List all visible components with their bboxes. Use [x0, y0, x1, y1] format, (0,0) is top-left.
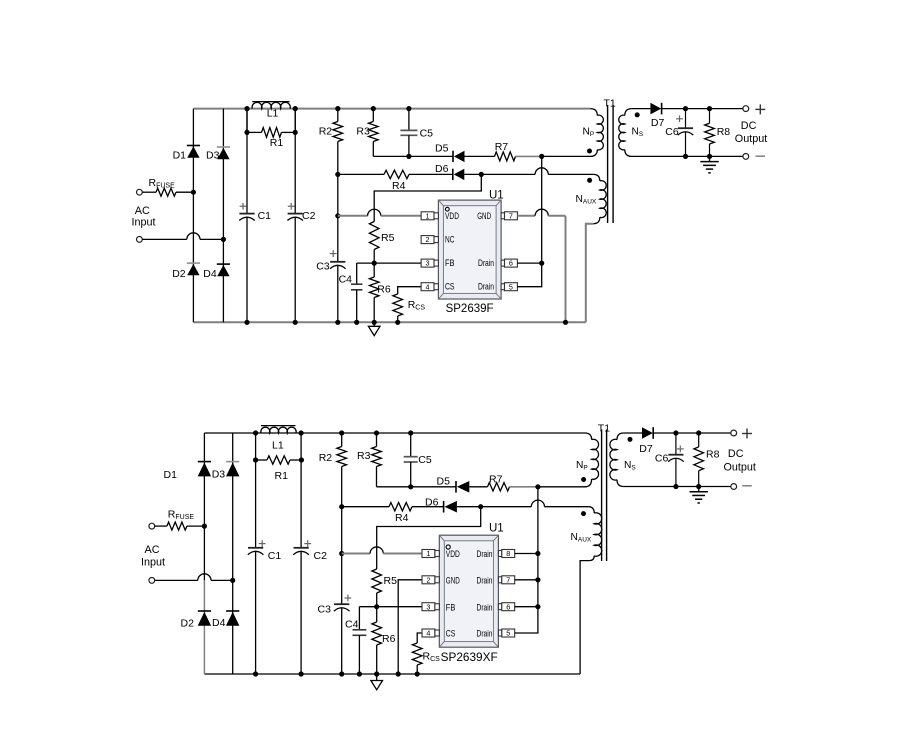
svg-text:R6: R6 [382, 633, 396, 645]
svg-text:U1: U1 [489, 523, 504, 535]
svg-text:R2: R2 [319, 452, 333, 464]
svg-text:R6: R6 [377, 284, 391, 296]
svg-text:T1: T1 [604, 98, 616, 110]
svg-text:C6: C6 [665, 126, 679, 138]
svg-text:5: 5 [506, 629, 510, 638]
svg-text:C3: C3 [318, 604, 332, 616]
svg-text:D6: D6 [425, 497, 439, 509]
svg-text:C5: C5 [420, 127, 434, 139]
svg-text:D4: D4 [212, 617, 226, 629]
svg-text:AC: AC [145, 544, 160, 556]
svg-text:Input: Input [132, 216, 156, 228]
svg-text:Drain: Drain [478, 281, 494, 291]
svg-text:DC: DC [728, 448, 744, 460]
svg-text:4: 4 [426, 629, 430, 638]
svg-text:7: 7 [506, 575, 510, 584]
svg-text:CS: CS [445, 282, 455, 292]
svg-text:R3: R3 [356, 125, 370, 137]
svg-text:2: 2 [426, 235, 430, 244]
svg-text:D7: D7 [639, 443, 653, 455]
svg-text:7: 7 [509, 211, 513, 220]
svg-text:R1: R1 [275, 470, 289, 482]
svg-text:AC: AC [135, 205, 150, 217]
svg-text:Output: Output [724, 462, 756, 474]
svg-text:D3: D3 [206, 150, 220, 162]
svg-text:C5: C5 [418, 454, 432, 466]
svg-text:DC: DC [741, 120, 757, 132]
svg-text:6: 6 [509, 259, 513, 268]
svg-text:L1: L1 [272, 440, 284, 452]
svg-text:C2: C2 [302, 210, 316, 222]
svg-text:T1: T1 [598, 422, 610, 434]
svg-text:D1: D1 [173, 150, 187, 162]
svg-text:C6: C6 [655, 453, 669, 465]
svg-text:U1: U1 [489, 190, 504, 202]
svg-text:C2: C2 [314, 550, 328, 562]
svg-text:C4: C4 [345, 619, 359, 631]
svg-text:D2: D2 [181, 618, 195, 630]
svg-text:VDD: VDD [445, 211, 459, 221]
svg-text:3: 3 [426, 602, 430, 611]
svg-text:1: 1 [426, 549, 430, 558]
svg-text:FB: FB [445, 258, 455, 268]
svg-text:GND: GND [446, 575, 460, 585]
svg-text:R4: R4 [392, 180, 406, 192]
svg-text:D7: D7 [651, 117, 665, 129]
svg-text:3: 3 [426, 259, 430, 268]
svg-text:8: 8 [506, 549, 510, 558]
svg-text:FB: FB [446, 602, 456, 612]
svg-text:C1: C1 [268, 550, 282, 562]
svg-text:Drain: Drain [477, 602, 493, 612]
svg-text:Output: Output [735, 133, 767, 145]
svg-text:R5: R5 [381, 232, 395, 244]
svg-text:4: 4 [426, 282, 430, 291]
svg-text:2: 2 [426, 575, 430, 584]
svg-text:D3: D3 [212, 469, 226, 481]
svg-text:5: 5 [509, 282, 513, 291]
svg-text:Input: Input [141, 557, 165, 569]
svg-text:R4: R4 [395, 512, 409, 524]
svg-text:R1: R1 [270, 137, 284, 149]
svg-text:C3: C3 [316, 260, 330, 272]
svg-text:Drain: Drain [478, 258, 494, 268]
svg-text:GND: GND [477, 211, 491, 221]
svg-text:Drain: Drain [477, 629, 493, 639]
svg-text:R3: R3 [357, 450, 371, 462]
svg-text:Drain: Drain [477, 575, 493, 585]
svg-text:D1: D1 [164, 469, 178, 481]
svg-text:C1: C1 [258, 210, 272, 222]
svg-text:CS: CS [446, 629, 456, 639]
svg-text:R7: R7 [495, 141, 509, 153]
svg-text:SP2639XF: SP2639XF [441, 650, 498, 664]
svg-text:D5: D5 [435, 143, 449, 155]
svg-text:C4: C4 [339, 273, 353, 285]
svg-text:1: 1 [426, 211, 430, 220]
svg-text:R7: R7 [489, 474, 503, 486]
svg-text:D6: D6 [435, 163, 449, 175]
svg-text:R8: R8 [717, 126, 731, 138]
svg-text:D5: D5 [437, 476, 451, 488]
svg-text:6: 6 [506, 602, 510, 611]
svg-text:D4: D4 [203, 268, 217, 280]
svg-text:D2: D2 [172, 268, 186, 280]
svg-text:SP2639F: SP2639F [446, 303, 494, 315]
svg-text:L1: L1 [267, 108, 279, 120]
svg-text:VDD: VDD [446, 549, 460, 559]
svg-text:R8: R8 [706, 449, 720, 461]
svg-text:NC: NC [445, 235, 455, 245]
svg-text:Drain: Drain [477, 549, 493, 559]
svg-text:R2: R2 [319, 126, 333, 138]
svg-text:R5: R5 [384, 575, 398, 587]
